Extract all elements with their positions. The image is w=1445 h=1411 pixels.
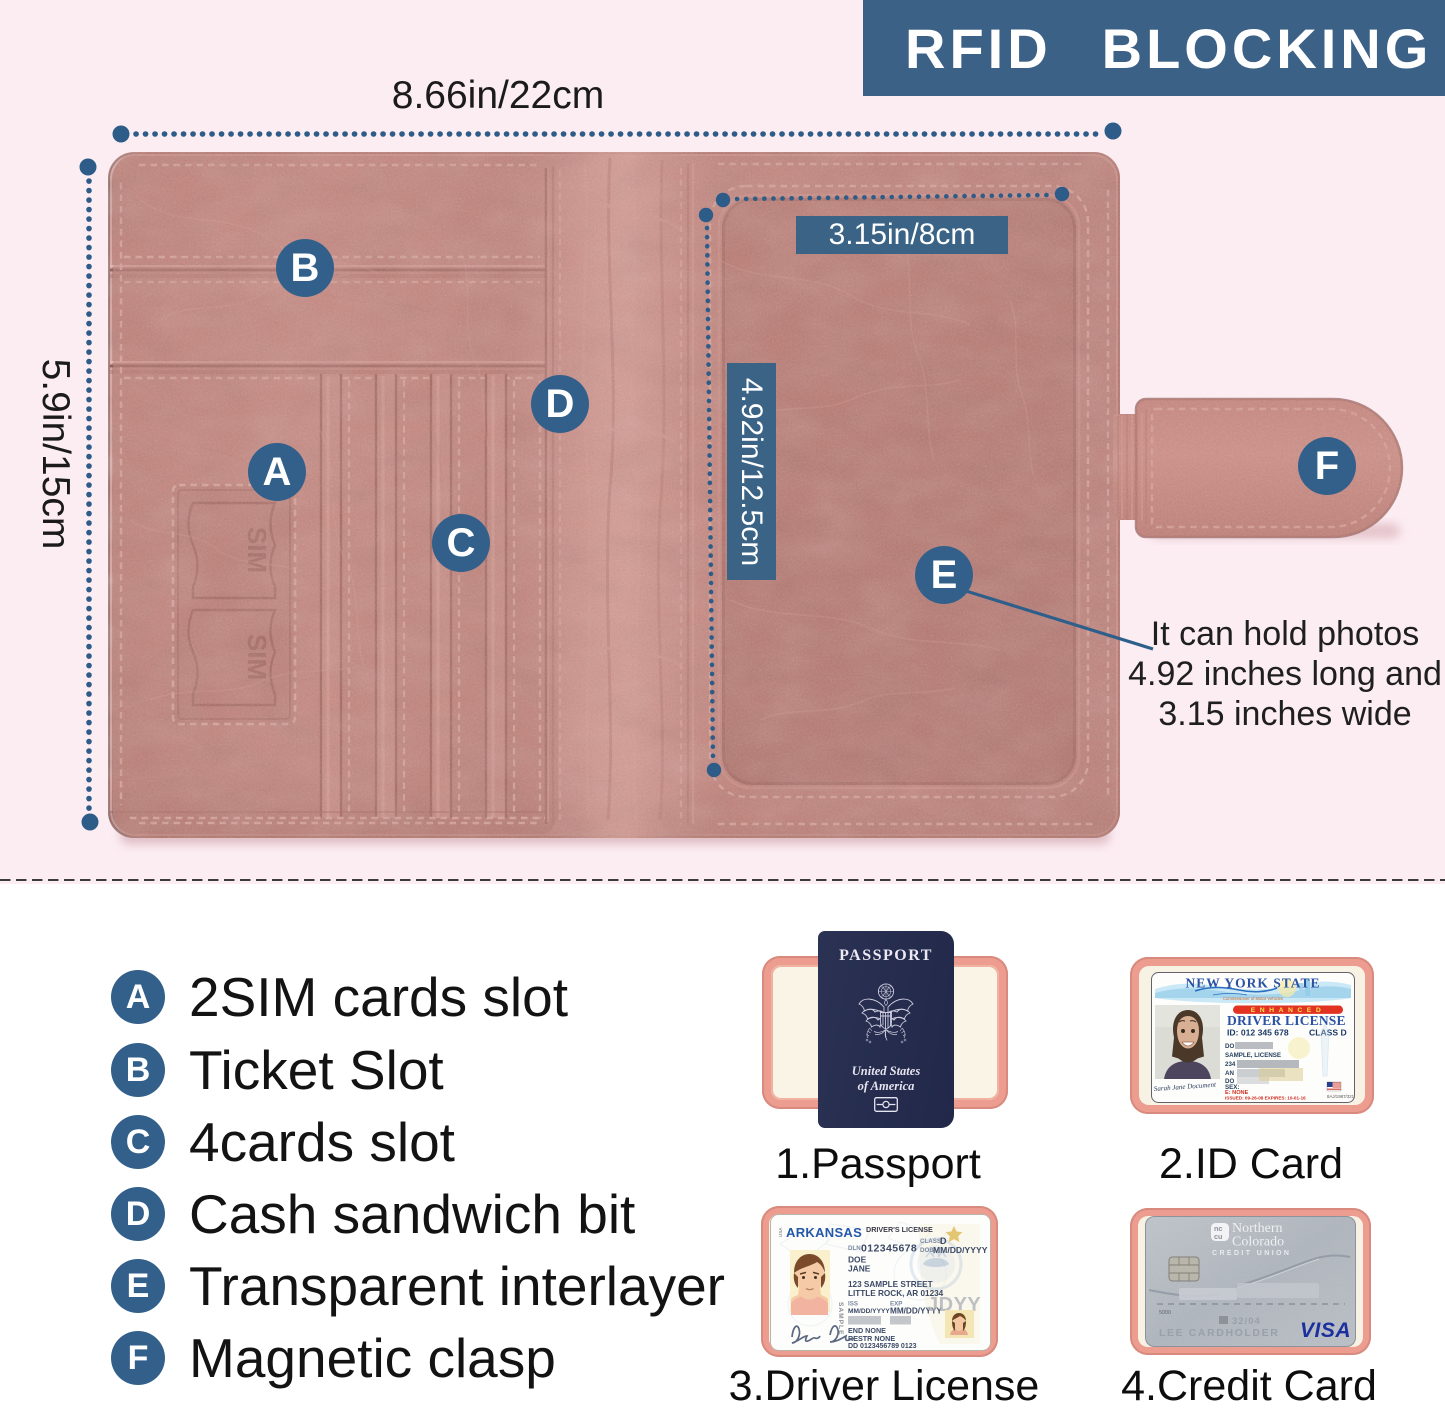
svg-text:USA: USA: [778, 1227, 783, 1237]
svg-text:234: 234: [1225, 1061, 1236, 1068]
svg-text:ISS: ISS: [848, 1301, 858, 1308]
svg-text:SAMPLE, LICENSE: SAMPLE, LICENSE: [1225, 1052, 1281, 1059]
svg-text:8AJ/1987/321: 8AJ/1987/321: [1327, 1094, 1355, 1099]
svg-text:VISA: VISA: [1300, 1319, 1351, 1342]
svg-text:ID: 012 345 678: ID: 012 345 678: [1227, 1028, 1289, 1038]
svg-text:AN: AN: [1225, 1070, 1234, 1077]
svg-text:Colorado: Colorado: [1232, 1235, 1284, 1250]
svg-text:MM/DD/YYYY: MM/DD/YYYY: [848, 1308, 890, 1315]
svg-text:123 SAMPLE STREET: 123 SAMPLE STREET: [848, 1280, 933, 1289]
svg-text:DRIVER LICENSE: DRIVER LICENSE: [1227, 1013, 1346, 1028]
svg-text:ARKANSAS: ARKANSAS: [786, 1225, 862, 1240]
svg-text:DO: DO: [1225, 1043, 1234, 1050]
svg-text:DRIVER'S LICENSE: DRIVER'S LICENSE: [866, 1225, 933, 1234]
svg-text:cu: cu: [1214, 1232, 1222, 1241]
svg-text:012345678: 012345678: [861, 1243, 917, 1255]
svg-text:CLASS: CLASS: [920, 1238, 941, 1245]
svg-text:32/04: 32/04: [1232, 1316, 1261, 1327]
svg-text:LEE CARDHOLDER: LEE CARDHOLDER: [1159, 1327, 1279, 1339]
svg-text:Commissioner of Motor Vehicles: Commissioner of Motor Vehicles: [1223, 996, 1283, 1001]
svg-text:DD 0123456789 0123: DD 0123456789 0123: [848, 1343, 917, 1350]
svg-text:JANE: JANE: [848, 1264, 871, 1274]
svg-text:DLN: DLN: [848, 1245, 861, 1252]
svg-text:CREDIT UNION: CREDIT UNION: [1212, 1250, 1291, 1257]
svg-text:5000: 5000: [1159, 1310, 1171, 1316]
svg-text:MM/DD/YYYY: MM/DD/YYYY: [933, 1245, 988, 1255]
svg-text:ISSUED: 09-26-08 EXPIRES: 10-: ISSUED: 09-26-08 EXPIRES: 10-01-16: [1225, 1096, 1306, 1101]
